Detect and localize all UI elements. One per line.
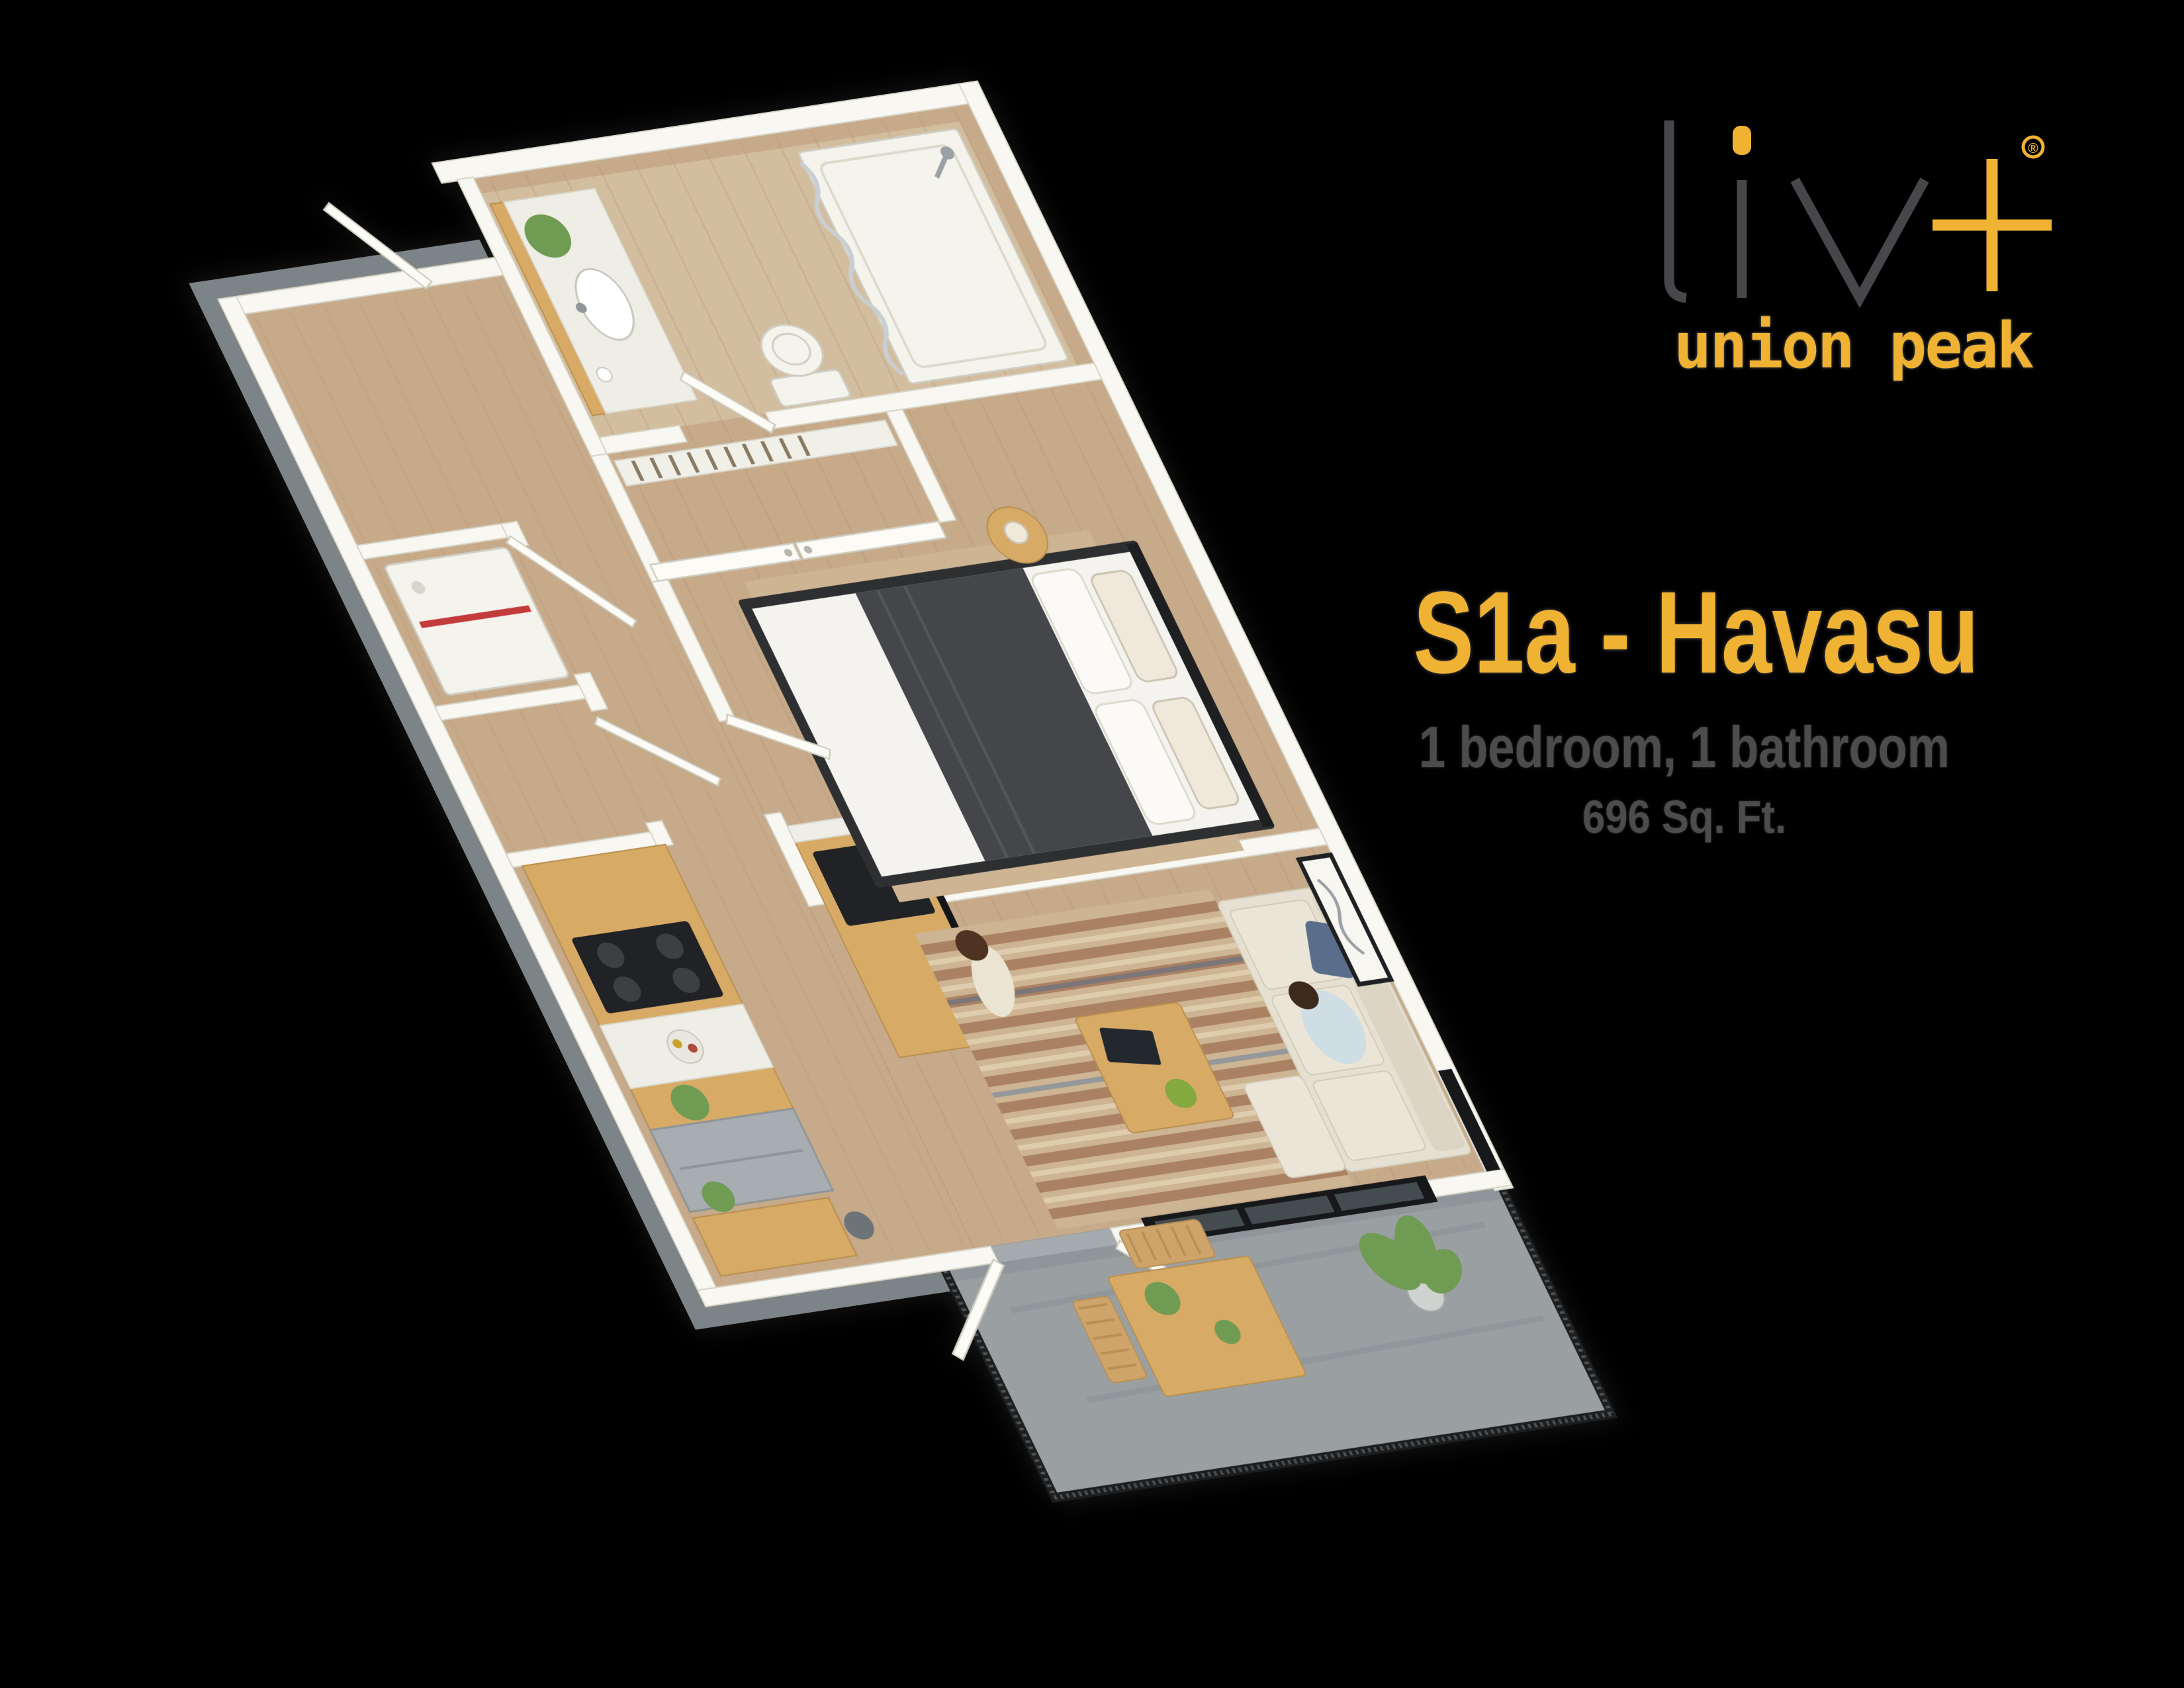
plan-info: S1a - Havasu 1 bedroom, 1 bathroom 696 S… [1337,575,2032,843]
plan-title: S1a - Havasu [1414,575,1956,691]
plan-area: 696 Sq. Ft. [1379,790,1990,843]
laptop [1099,1027,1161,1065]
i-dot-icon [1733,126,1751,155]
logo-plus-icon [1933,159,2052,291]
liv-logo: liv ® [1641,106,2065,314]
registered-mark: ® [2023,137,2043,157]
page: liv ® union peak S1a - Havasu 1 bedroom,… [0,0,2184,1688]
liv-logotype-icon: ® [1641,106,2065,311]
plan-bed-bath: 1 bedroom, 1 bathroom [1400,714,1970,781]
community-name: union peak [1615,310,2091,383]
svg-text:®: ® [2028,141,2038,156]
